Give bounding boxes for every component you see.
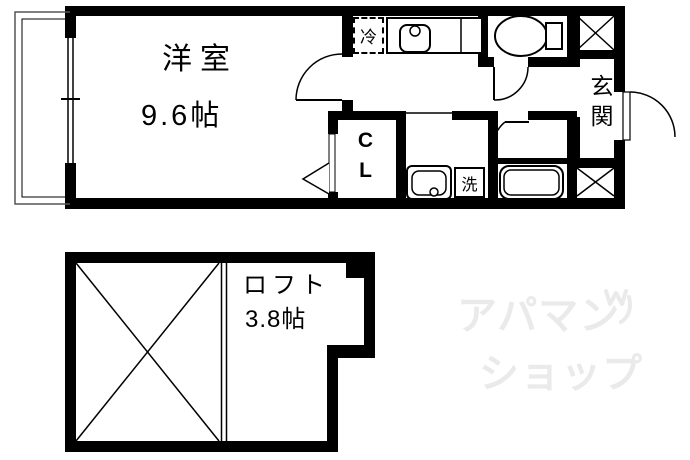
bathtub-inner (504, 170, 559, 195)
bath-door-arc (494, 122, 505, 151)
loft-name: ロフト (243, 274, 330, 298)
watermark-line1: アパマン (457, 283, 620, 341)
watermark-line2: ショップ (479, 341, 643, 399)
entrance-label: 玄関 (588, 74, 611, 134)
floor-plan: 洋室 9.6帖 冷 CL 洗 玄関 ロフト 3.8帖 アパマン ショップ (0, 0, 690, 460)
loft-size: 3.8帖 (245, 308, 306, 332)
washing-machine-label: 洗 (461, 171, 477, 195)
refrigerator-label: 冷 (360, 23, 377, 48)
washing-machine-box: 洗 (454, 167, 485, 198)
refrigerator-box: 冷 (353, 17, 384, 54)
main-room-door-arc (296, 54, 342, 100)
toilet-tank (546, 23, 562, 49)
main-room-size: 9.6帖 (141, 102, 222, 131)
entrance-door-leaf (623, 92, 630, 140)
balcony-outline-outer (15, 12, 70, 204)
closet-folding-door (303, 163, 329, 194)
main-room-name: 洋室 (162, 45, 238, 75)
washbasin-drain-icon (430, 188, 438, 196)
closet-label: CL (355, 129, 376, 189)
entrance-door-arc (630, 92, 675, 137)
washbasin-inner (412, 171, 446, 195)
toilet-door-arc (494, 67, 528, 100)
kitchen-faucet-icon (410, 26, 420, 36)
closet-door-frame (329, 134, 335, 192)
balcony-outline-inner (22, 19, 70, 197)
toilet-bowl (495, 16, 547, 56)
